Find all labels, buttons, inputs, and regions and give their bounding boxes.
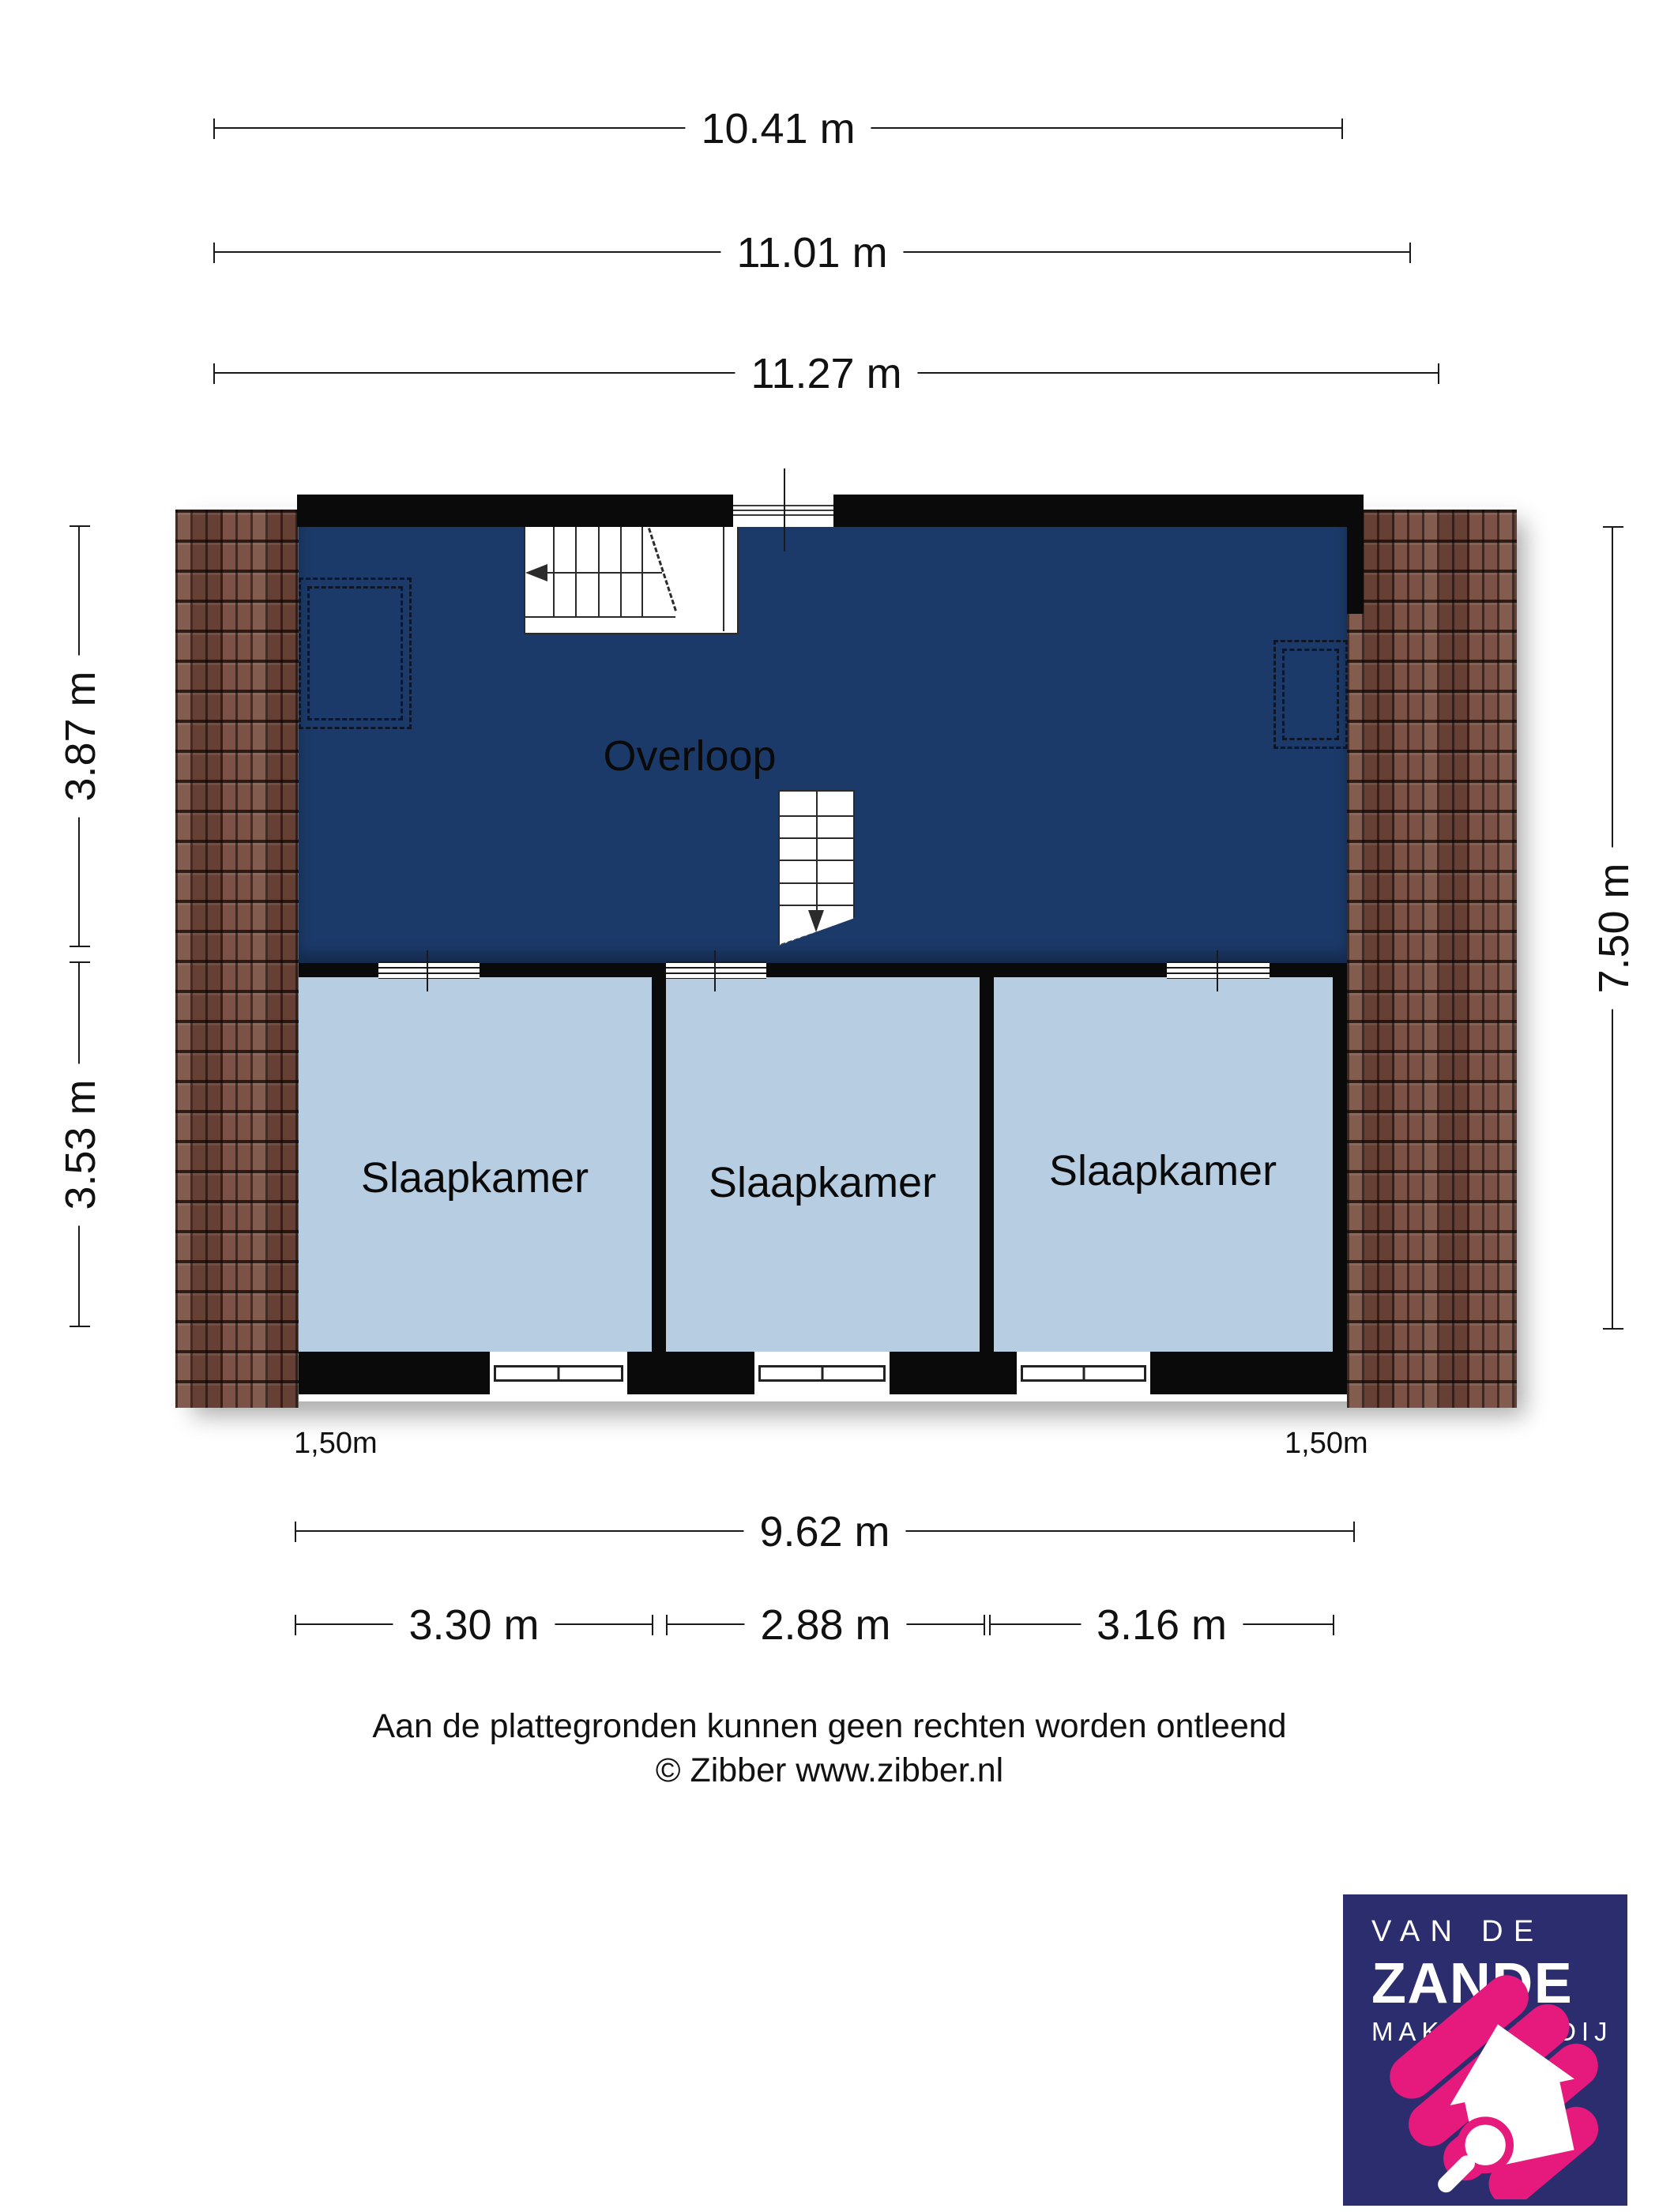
stair-direction-line xyxy=(816,792,818,912)
wall-bedroom2-3 xyxy=(980,977,994,1352)
dim-bottom-room-2: 2.88 m xyxy=(666,1623,985,1625)
window-top-tick xyxy=(784,468,785,551)
dim-bottom-room-3-label: 3.16 m xyxy=(1081,1601,1243,1650)
roof-recess-right-inner xyxy=(1282,649,1339,740)
window-glazing xyxy=(1021,1365,1146,1382)
disclaimer: Aan de plattegronden kunnen geen rechten… xyxy=(0,1705,1659,1793)
roof-recess-left xyxy=(299,577,412,729)
stair-winder-dashed-line xyxy=(648,528,677,611)
dim-right-1-label: 7.50 m xyxy=(1589,847,1638,1009)
door-bedroom-3 xyxy=(1167,961,1270,979)
wall-bedroom1-2 xyxy=(652,977,666,1352)
door-bedroom-1-tick xyxy=(427,950,428,991)
stair-direction-line xyxy=(531,572,662,574)
window-glazing xyxy=(758,1365,886,1382)
roof-recess-right xyxy=(1273,640,1348,749)
dim-bottom-room-3: 3.16 m xyxy=(989,1623,1334,1625)
door-bedroom-2 xyxy=(666,961,766,979)
dim-bottom-total: 9.62 m xyxy=(295,1530,1355,1532)
dim-bottom-room-2-label: 2.88 m xyxy=(744,1601,906,1650)
dim-top-2: 11.01 m xyxy=(213,251,1411,253)
dim-top-2-label: 11.01 m xyxy=(720,228,903,277)
dim-top-1-label: 10.41 m xyxy=(685,104,871,153)
room-label-bedroom-3: Slaapkamer xyxy=(1049,1146,1277,1195)
staircase-main xyxy=(524,527,739,634)
dim-right-1: 7.50 m xyxy=(1612,526,1613,1330)
roof-tiles-right xyxy=(1347,510,1517,1408)
window-bedroom-2 xyxy=(754,1352,890,1394)
window-bedroom-3 xyxy=(1017,1352,1150,1394)
wall-right-stub xyxy=(1347,495,1364,614)
window-bedroom-1 xyxy=(490,1352,627,1394)
disclaimer-line-1: Aan de plattegronden kunnen geen rechten… xyxy=(0,1705,1659,1749)
dim-bottom-room-1-label: 3.30 m xyxy=(393,1601,555,1650)
room-label-bedroom-2: Slaapkamer xyxy=(709,1158,936,1207)
roof-recess-left-inner xyxy=(307,586,403,720)
window-glazing xyxy=(494,1365,623,1382)
door-bedroom-1 xyxy=(378,961,480,979)
dim-top-3: 11.27 m xyxy=(213,372,1439,374)
dim-left-2-label: 3.53 m xyxy=(56,1063,105,1225)
floorplan-page: 10.41 m 11.01 m 11.27 m xyxy=(0,0,1659,2212)
disclaimer-line-2: © Zibber www.zibber.nl xyxy=(0,1749,1659,1793)
dim-bottom-total-label: 9.62 m xyxy=(743,1507,905,1556)
wall-top-right xyxy=(833,495,1347,527)
door-bedroom-2-tick xyxy=(714,950,716,991)
room-label-bedroom-1: Slaapkamer xyxy=(361,1153,589,1202)
roof-tiles-left xyxy=(175,510,299,1408)
dim-left-1: 3.87 m xyxy=(78,525,80,947)
stair-arrow-left-icon xyxy=(525,564,547,581)
dim-bottom-room-1: 3.30 m xyxy=(295,1623,653,1625)
logo-van-de-zande: VAN DE ZANDE MAKELAARDIJ xyxy=(1343,1894,1627,2206)
headroom-label-right: 1,50m xyxy=(1285,1427,1368,1461)
dim-left-2: 3.53 m xyxy=(78,961,80,1327)
wall-bedroom3-right xyxy=(1333,963,1347,1352)
dim-top-1: 10.41 m xyxy=(213,127,1343,129)
house-magnifier-icon xyxy=(1390,1962,1623,2199)
wall-top-left xyxy=(297,495,733,527)
logo-line-1: VAN DE xyxy=(1371,1915,1612,1949)
dim-top-3-label: 11.27 m xyxy=(735,349,917,398)
room-label-landing: Overloop xyxy=(603,732,776,781)
headroom-label-left: 1,50m xyxy=(294,1427,378,1461)
dim-left-1-label: 3.87 m xyxy=(56,655,105,817)
door-bedroom-3-tick xyxy=(1217,950,1218,991)
